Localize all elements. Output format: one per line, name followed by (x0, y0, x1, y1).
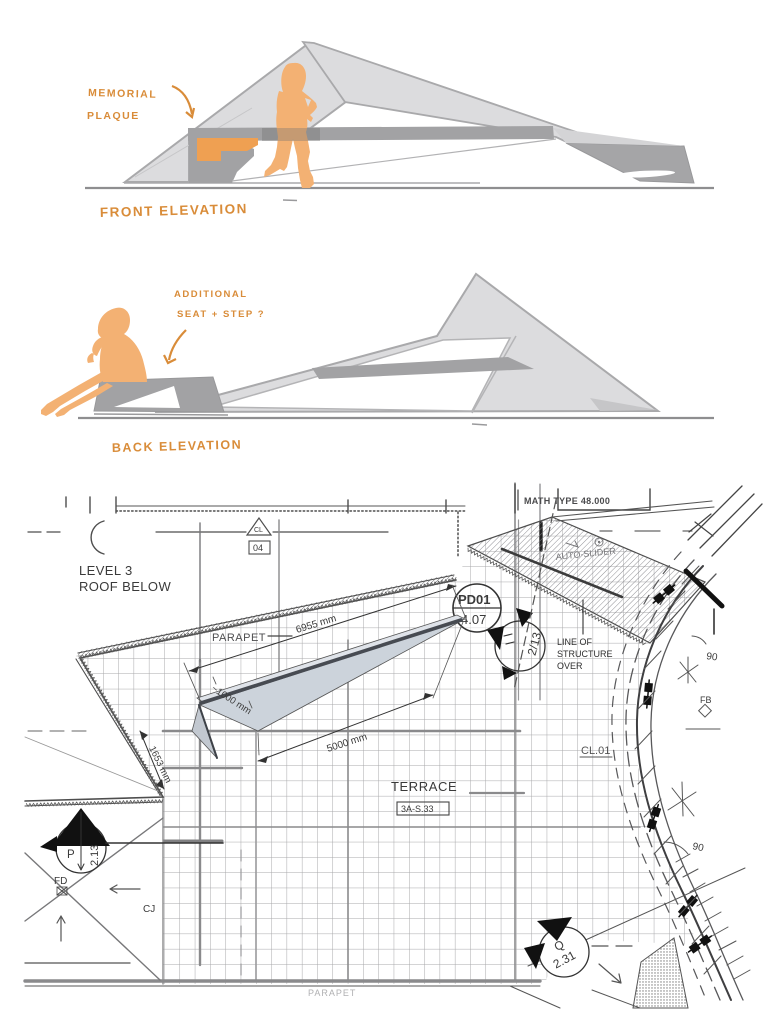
svg-text:LINE OF: LINE OF (557, 637, 593, 647)
svg-text:CJ: CJ (143, 904, 155, 915)
svg-text:PLAQUE: PLAQUE (87, 110, 140, 122)
svg-text:04: 04 (253, 543, 263, 553)
svg-text:STRUCTURE: STRUCTURE (557, 649, 613, 659)
svg-text:MATH TYPE 48.000: MATH TYPE 48.000 (524, 496, 610, 506)
svg-text:SEAT + STEP ?: SEAT + STEP ? (177, 309, 265, 320)
svg-text:ADDITIONAL: ADDITIONAL (174, 289, 248, 300)
svg-text:TERRACE: TERRACE (391, 779, 457, 794)
svg-text:FB: FB (700, 695, 712, 705)
svg-text:ROOF BELOW: ROOF BELOW (79, 579, 171, 594)
svg-text:3A-S.33: 3A-S.33 (401, 804, 434, 814)
svg-text:4.07: 4.07 (461, 612, 486, 627)
svg-text:CL: CL (254, 527, 263, 534)
svg-text:MEMORIAL: MEMORIAL (88, 87, 157, 101)
svg-text:PARAPET: PARAPET (308, 988, 356, 998)
svg-text:PARAPET: PARAPET (212, 632, 266, 644)
svg-text:LEVEL 3: LEVEL 3 (79, 563, 133, 578)
svg-text:2.13: 2.13 (89, 845, 101, 866)
svg-text:90: 90 (706, 651, 719, 664)
svg-text:CL.01: CL.01 (581, 745, 610, 757)
svg-text:OVER: OVER (557, 661, 583, 671)
svg-text:FD: FD (54, 876, 67, 887)
svg-text:P: P (67, 849, 75, 861)
svg-text:PD01: PD01 (458, 592, 491, 607)
